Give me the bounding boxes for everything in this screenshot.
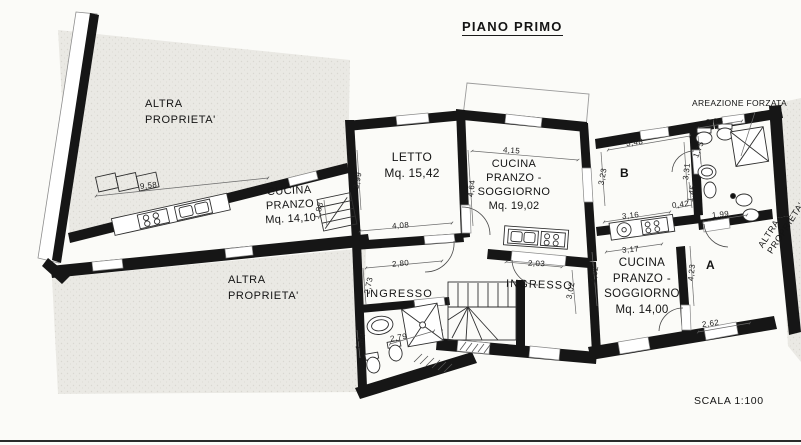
room-area: Mq. 14,00 [594, 303, 690, 319]
room-name-line: CUCINA [594, 256, 690, 272]
room-area: Mq. 19,02 [468, 199, 560, 213]
altra-proprieta-bottom-left: ALTRA PROPRIETA' [228, 272, 299, 304]
altra-line1: ALTRA [145, 96, 216, 112]
dim-2-34: 2,34 [706, 116, 724, 127]
kitchen-counter-soggiorno19 [503, 226, 568, 249]
room-a-letter: A [706, 258, 715, 272]
dim-9-58: 9,58 [140, 180, 158, 191]
room-cucina-pranzo: CUCINA PRANZO Mq. 14,10 [237, 181, 343, 228]
dim-4-15: 4,15 [503, 145, 521, 155]
scale-label: SCALA 1:100 [694, 395, 764, 407]
dim-4-64: 4,64 [466, 179, 477, 197]
dim-3-16: 3,16 [622, 210, 640, 221]
dim-2-03: 2,03 [528, 259, 545, 269]
room-b-letter: B [620, 166, 629, 180]
room-letto: LETTO Mq. 15,42 [368, 149, 456, 181]
dim-1-99: 1,99 [712, 209, 730, 220]
floor-plan: PIANO PRIMO ALTRA PROPRIETA' ALTRA PROPR… [0, 0, 801, 445]
room-cucina-soggiorno-19: CUCINA PRANZO - SOGGIORNO Mq. 19,02 [468, 157, 560, 213]
altra-line2: PROPRIETA' [145, 112, 216, 128]
dim-3-17: 3,17 [622, 244, 640, 254]
altra-line2: PROPRIETA' [228, 288, 299, 304]
room-name-line: SOGGIORNO [468, 185, 560, 199]
dim-3-31: 3,31 [681, 162, 692, 180]
altra-line1: ALTRA [228, 272, 299, 288]
kitchen-counter-room-b [609, 214, 675, 240]
room-name-line: SOGGIORNO [594, 287, 690, 303]
dim-4-08: 4,08 [392, 220, 410, 230]
dim-2-80: 2,80 [392, 258, 410, 268]
altra-proprieta-top-left: ALTRA PROPRIETA' [145, 96, 216, 128]
room-ingresso-left: INGRESSO [366, 288, 433, 300]
room-area: Mq. 15,42 [368, 165, 456, 181]
room-cucina-soggiorno-14: CUCINA PRANZO - SOGGIORNO Mq. 14,00 [594, 256, 690, 318]
room-name-line: CUCINA [468, 157, 560, 171]
page-title: PIANO PRIMO [462, 19, 563, 36]
room-name-line: PRANZO - [594, 272, 690, 288]
room-ingresso-right: INGRESSO [506, 278, 573, 292]
dim-4-23: 4,23 [686, 263, 697, 281]
room-name-line: PRANZO - [468, 171, 560, 185]
room-name-line: LETTO [368, 149, 456, 165]
bathroom-upper-right [696, 124, 769, 221]
main-staircase [448, 282, 516, 340]
areazione-forzata-note: AREAZIONE FORZATA [692, 98, 787, 108]
